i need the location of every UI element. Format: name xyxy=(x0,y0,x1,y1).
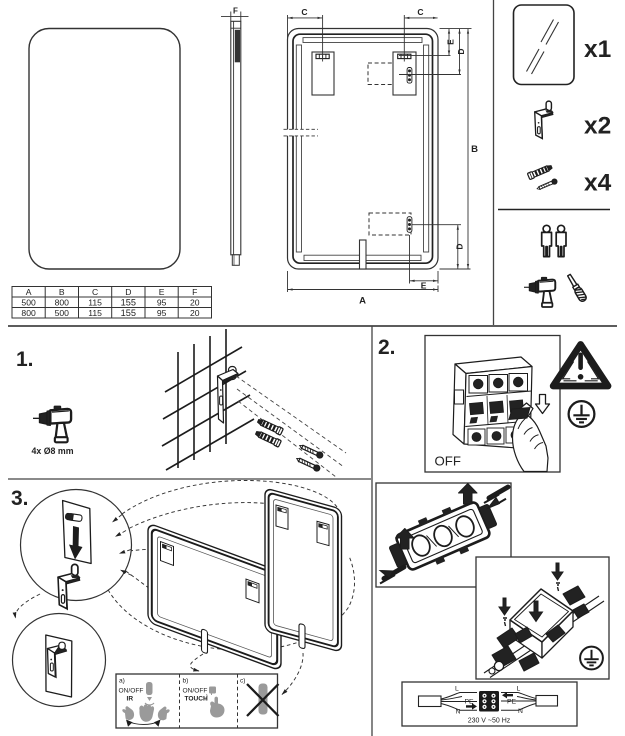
svg-text:115: 115 xyxy=(88,297,102,307)
svg-text:IR: IR xyxy=(127,696,134,703)
svg-text:95: 95 xyxy=(157,308,167,318)
svg-text:OFF: OFF xyxy=(435,454,461,469)
svg-text:800: 800 xyxy=(21,308,36,318)
svg-text:20: 20 xyxy=(190,308,200,318)
svg-text:L: L xyxy=(455,686,459,693)
svg-text:b): b) xyxy=(183,678,189,685)
svg-text:800: 800 xyxy=(55,297,70,307)
svg-text:x1: x1 xyxy=(584,36,611,63)
svg-text:E: E xyxy=(446,39,456,45)
svg-text:500: 500 xyxy=(55,308,70,318)
svg-text:95: 95 xyxy=(157,297,167,307)
svg-text:3.: 3. xyxy=(11,487,29,510)
svg-text:N: N xyxy=(518,708,523,715)
svg-text:A: A xyxy=(26,287,32,297)
svg-text:20: 20 xyxy=(190,297,200,307)
svg-text:A: A xyxy=(359,296,366,307)
svg-text:a): a) xyxy=(119,678,125,685)
svg-text:PE: PE xyxy=(507,699,517,706)
svg-text:c): c) xyxy=(240,678,246,685)
svg-text:155: 155 xyxy=(121,308,136,318)
svg-text:E: E xyxy=(421,281,427,291)
svg-text:D: D xyxy=(456,48,466,54)
svg-text:C: C xyxy=(301,7,307,17)
svg-text:C: C xyxy=(92,287,98,297)
svg-text:D: D xyxy=(454,243,464,249)
svg-text:x2: x2 xyxy=(584,113,611,140)
svg-text:1.: 1. xyxy=(16,348,34,371)
svg-text:ON/OFF: ON/OFF xyxy=(183,688,208,695)
svg-text:ON/OFF: ON/OFF xyxy=(119,688,144,695)
svg-text:155: 155 xyxy=(121,298,136,308)
svg-text:115: 115 xyxy=(88,308,102,318)
svg-text:B: B xyxy=(59,287,65,297)
svg-text:L: L xyxy=(517,686,521,693)
svg-text:B: B xyxy=(471,144,478,155)
svg-text:N: N xyxy=(456,709,461,716)
svg-text:D: D xyxy=(125,287,131,297)
svg-text:230 V ~50 Hz: 230 V ~50 Hz xyxy=(468,718,511,725)
svg-text:x4: x4 xyxy=(584,170,612,197)
svg-text:2.: 2. xyxy=(378,336,396,359)
svg-text:C: C xyxy=(417,7,423,17)
svg-text:E: E xyxy=(159,287,165,297)
svg-text:F: F xyxy=(233,7,238,16)
svg-text:500: 500 xyxy=(21,297,36,307)
svg-text:F: F xyxy=(192,287,197,297)
svg-text:4x Ø8 mm: 4x Ø8 mm xyxy=(31,446,73,456)
